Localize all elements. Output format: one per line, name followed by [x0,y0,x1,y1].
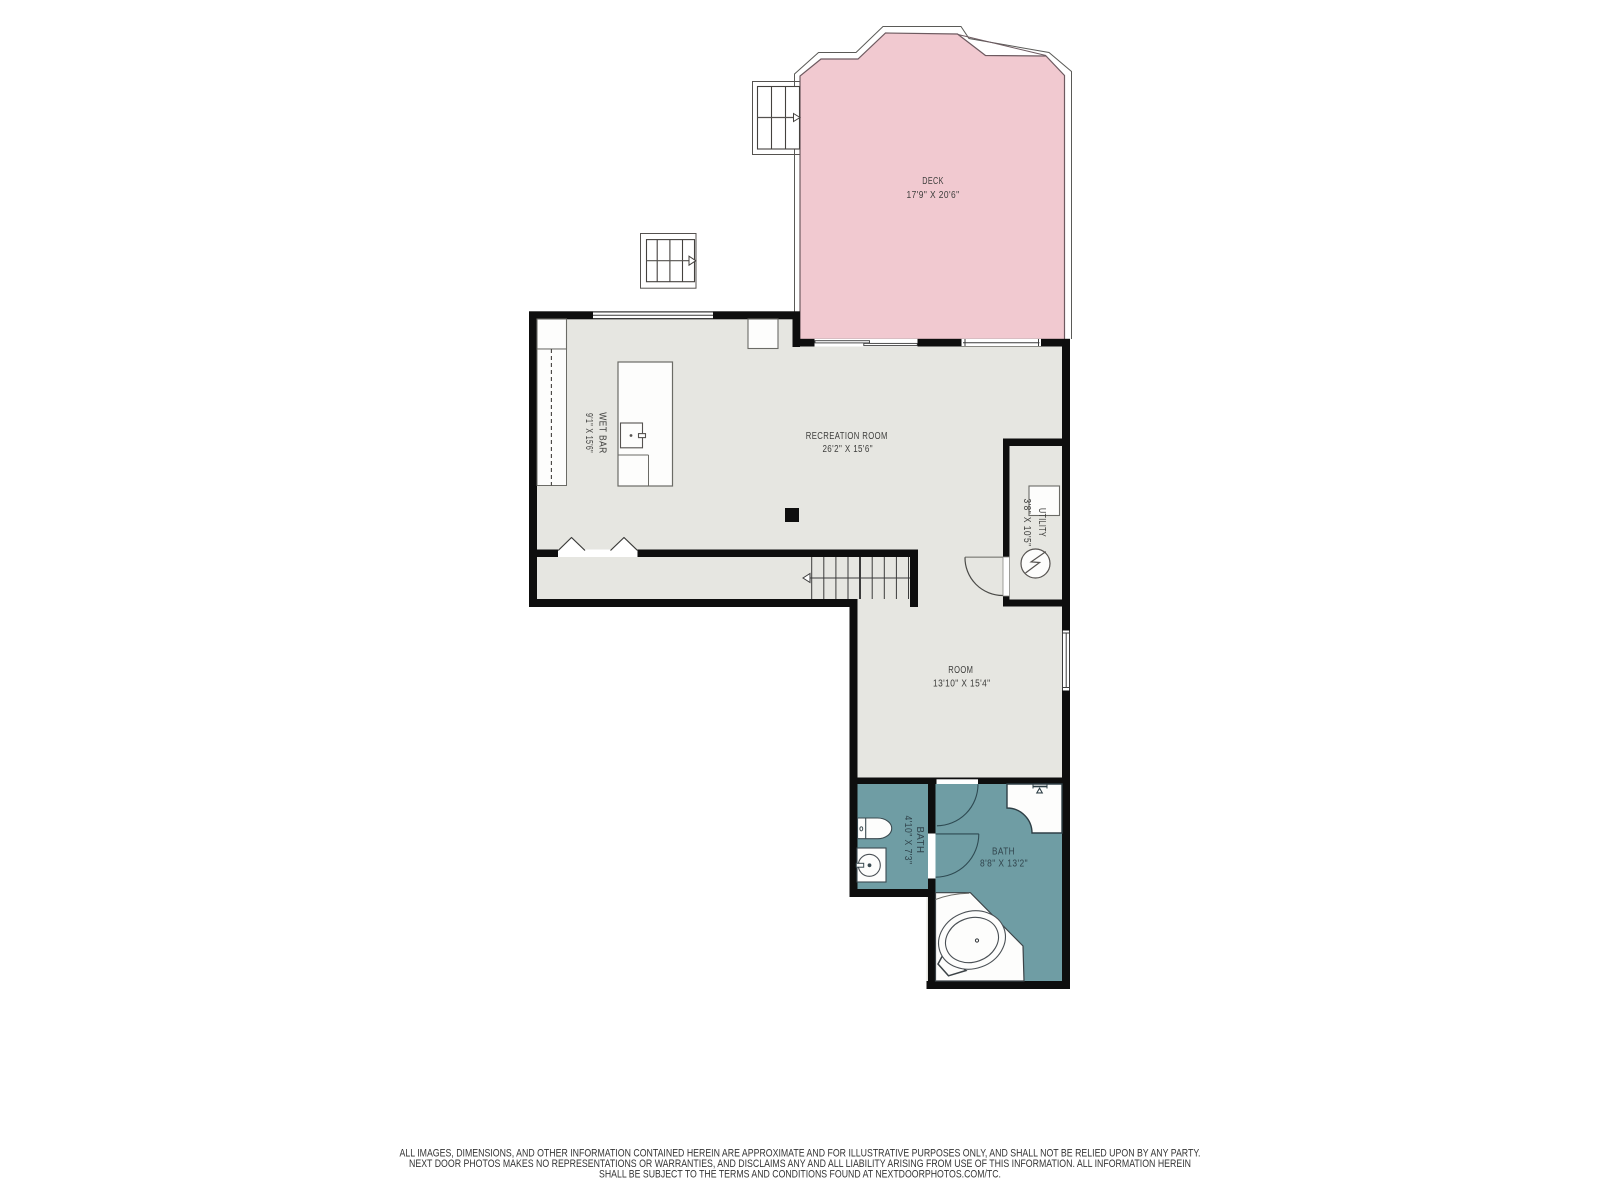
svg-text:DECK: DECK [922,176,944,187]
svg-text:WET BAR: WET BAR [597,412,608,454]
svg-text:SHALL BE SUBJECT TO THE TERMS: SHALL BE SUBJECT TO THE TERMS AND CONDIT… [599,1168,1001,1180]
svg-text:3'8" X 10'5": 3'8" X 10'5" [1021,499,1032,547]
svg-text:8'8" X 13'2": 8'8" X 13'2" [980,859,1028,870]
svg-text:17'9" X 20'6": 17'9" X 20'6" [907,190,960,201]
svg-text:9'1" X 15'6": 9'1" X 15'6" [583,413,594,453]
svg-text:BATH: BATH [992,847,1015,858]
svg-text:13'10" X 15'4": 13'10" X 15'4" [933,679,991,690]
svg-text:RECREATION ROOM: RECREATION ROOM [806,431,888,442]
svg-text:BATH: BATH [914,827,925,854]
svg-text:4'10" X 7'3": 4'10" X 7'3" [902,816,913,865]
svg-text:26'2" X 15'6": 26'2" X 15'6" [822,444,873,455]
svg-text:UTILITY: UTILITY [1036,508,1047,537]
svg-text:ROOM: ROOM [948,665,973,676]
